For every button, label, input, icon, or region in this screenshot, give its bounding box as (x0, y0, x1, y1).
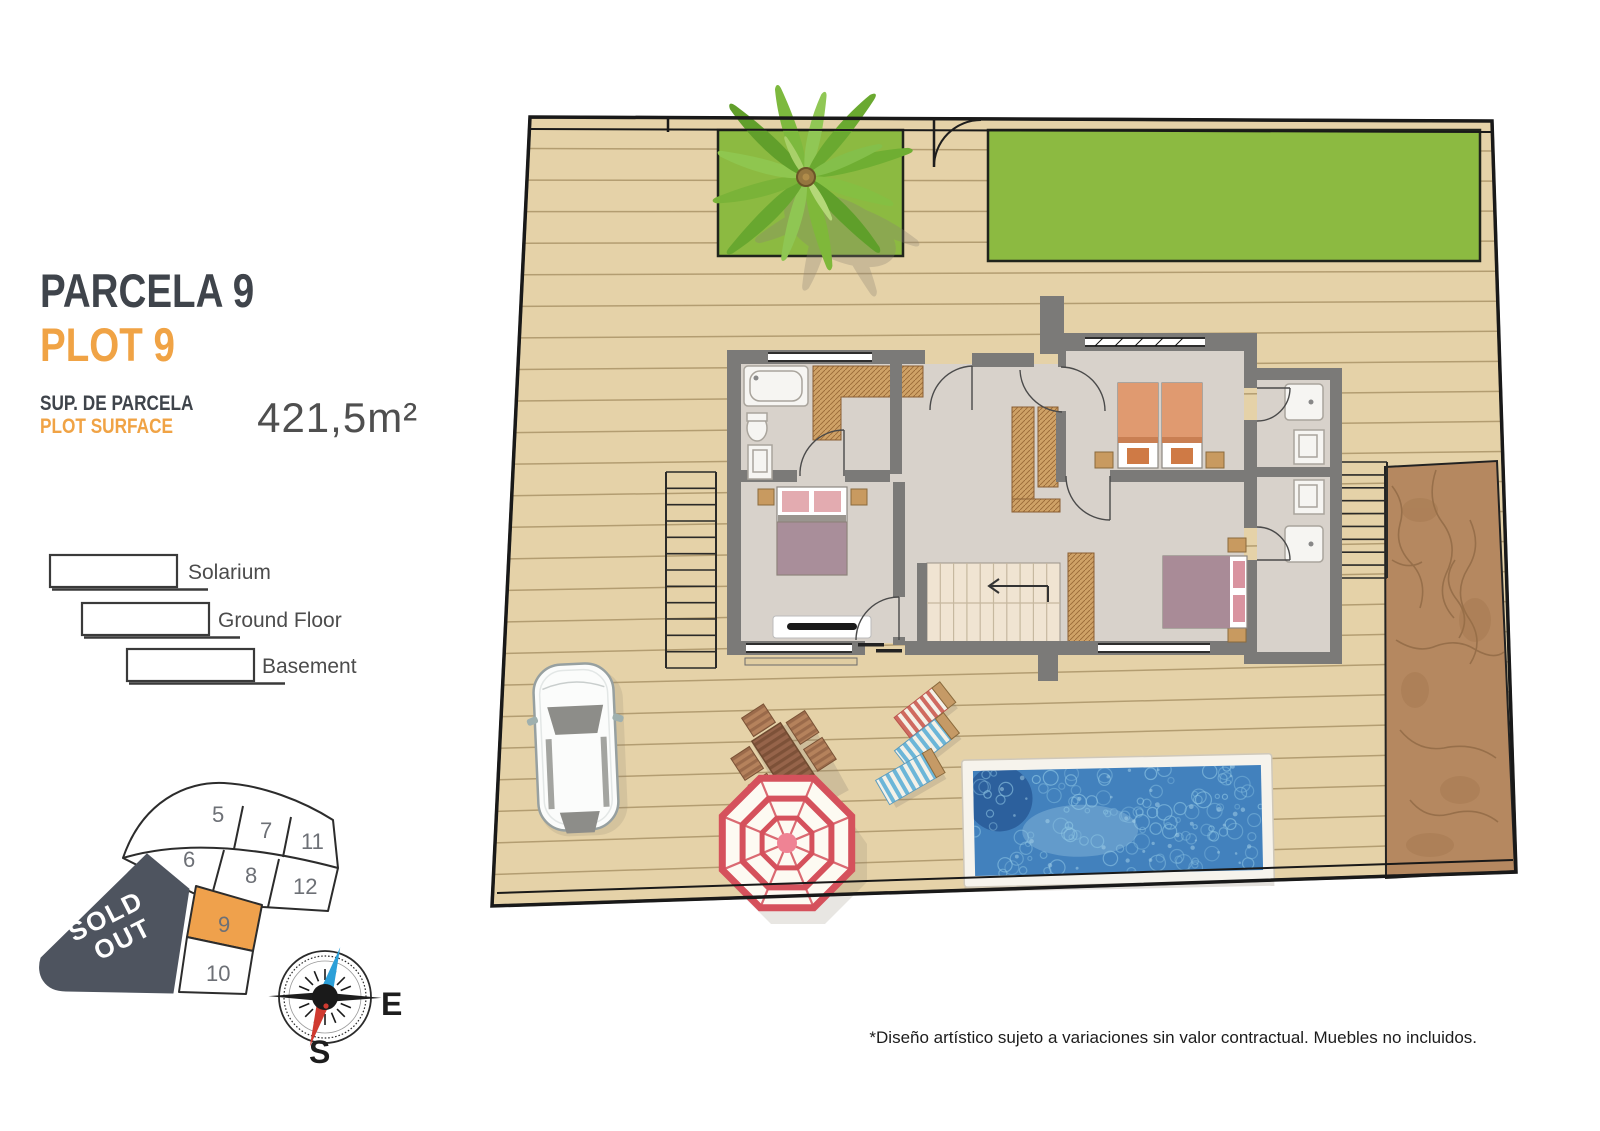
map-label-6: 6 (183, 847, 195, 872)
map-label-7: 7 (260, 818, 272, 843)
surface-label-es: SUP. DE PARCELA (40, 392, 227, 415)
bed-twin-2 (1162, 383, 1202, 468)
window (768, 352, 872, 362)
car-windshield (547, 705, 604, 735)
wardrobe-twin-room (1038, 407, 1058, 487)
car (524, 662, 630, 838)
nightstand (1095, 452, 1113, 468)
map-label-9-selected: 9 (218, 912, 230, 937)
grass-area-right (988, 130, 1480, 261)
site-plan (460, 55, 1580, 1085)
nightstand (1206, 452, 1224, 468)
map-label-11: 11 (301, 829, 324, 854)
development-map: 5 7 11 6 8 12 9 10 SOLD OUT (40, 783, 338, 994)
wardrobe-stairs (1068, 553, 1094, 643)
window (1098, 643, 1210, 653)
legend-item-basement: Basement (127, 649, 357, 684)
surface-label-en: PLOT SURFACE (40, 415, 227, 438)
swimming-pool (962, 754, 1275, 892)
plot-title-en: PLOT 9 (40, 320, 418, 370)
floor-legend: Solarium Ground Floor Basement (50, 555, 357, 684)
window (746, 643, 852, 653)
chimney (1040, 296, 1064, 354)
compass-south-label: S (309, 1034, 330, 1070)
surface-row: SUP. DE PARCELA PLOT SURFACE 421,5m² (40, 392, 418, 442)
shower-tray (1285, 526, 1323, 562)
car-rear-window (560, 811, 601, 834)
page: PARCELA 9 PLOT 9 SUP. DE PARCELA PLOT SU… (0, 0, 1600, 1131)
map-label-10: 10 (206, 961, 230, 986)
disclaimer-text: *Diseño artístico sujeto a variaciones s… (869, 1028, 1477, 1048)
info-panel: PARCELA 9 PLOT 9 SUP. DE PARCELA PLOT SU… (40, 266, 418, 442)
legend-label: Solarium (188, 561, 271, 584)
window (1085, 337, 1205, 347)
dirt-area (1385, 461, 1515, 878)
map-label-12: 12 (293, 874, 317, 899)
legend-item-solarium: Solarium (50, 555, 271, 590)
surface-value: 421,5m² (257, 394, 418, 442)
staircase (927, 563, 1060, 643)
legend-label: Ground Floor (218, 609, 342, 632)
wardrobe-hall (1012, 407, 1034, 499)
bathtub (744, 366, 808, 406)
left-graphics: Solarium Ground Floor Basement (20, 540, 460, 1080)
compass-east-label: E (381, 986, 402, 1022)
bed-twin-1 (1118, 383, 1158, 468)
compass-rose: E S (268, 946, 402, 1070)
legend-item-ground-floor: Ground Floor (82, 603, 342, 638)
legend-label: Basement (262, 655, 357, 678)
plot-title-es: PARCELA 9 (40, 266, 418, 316)
map-label-5: 5 (212, 802, 224, 827)
terrace-step (745, 658, 857, 665)
map-label-8: 8 (245, 863, 257, 888)
shower-tray (1285, 384, 1323, 420)
